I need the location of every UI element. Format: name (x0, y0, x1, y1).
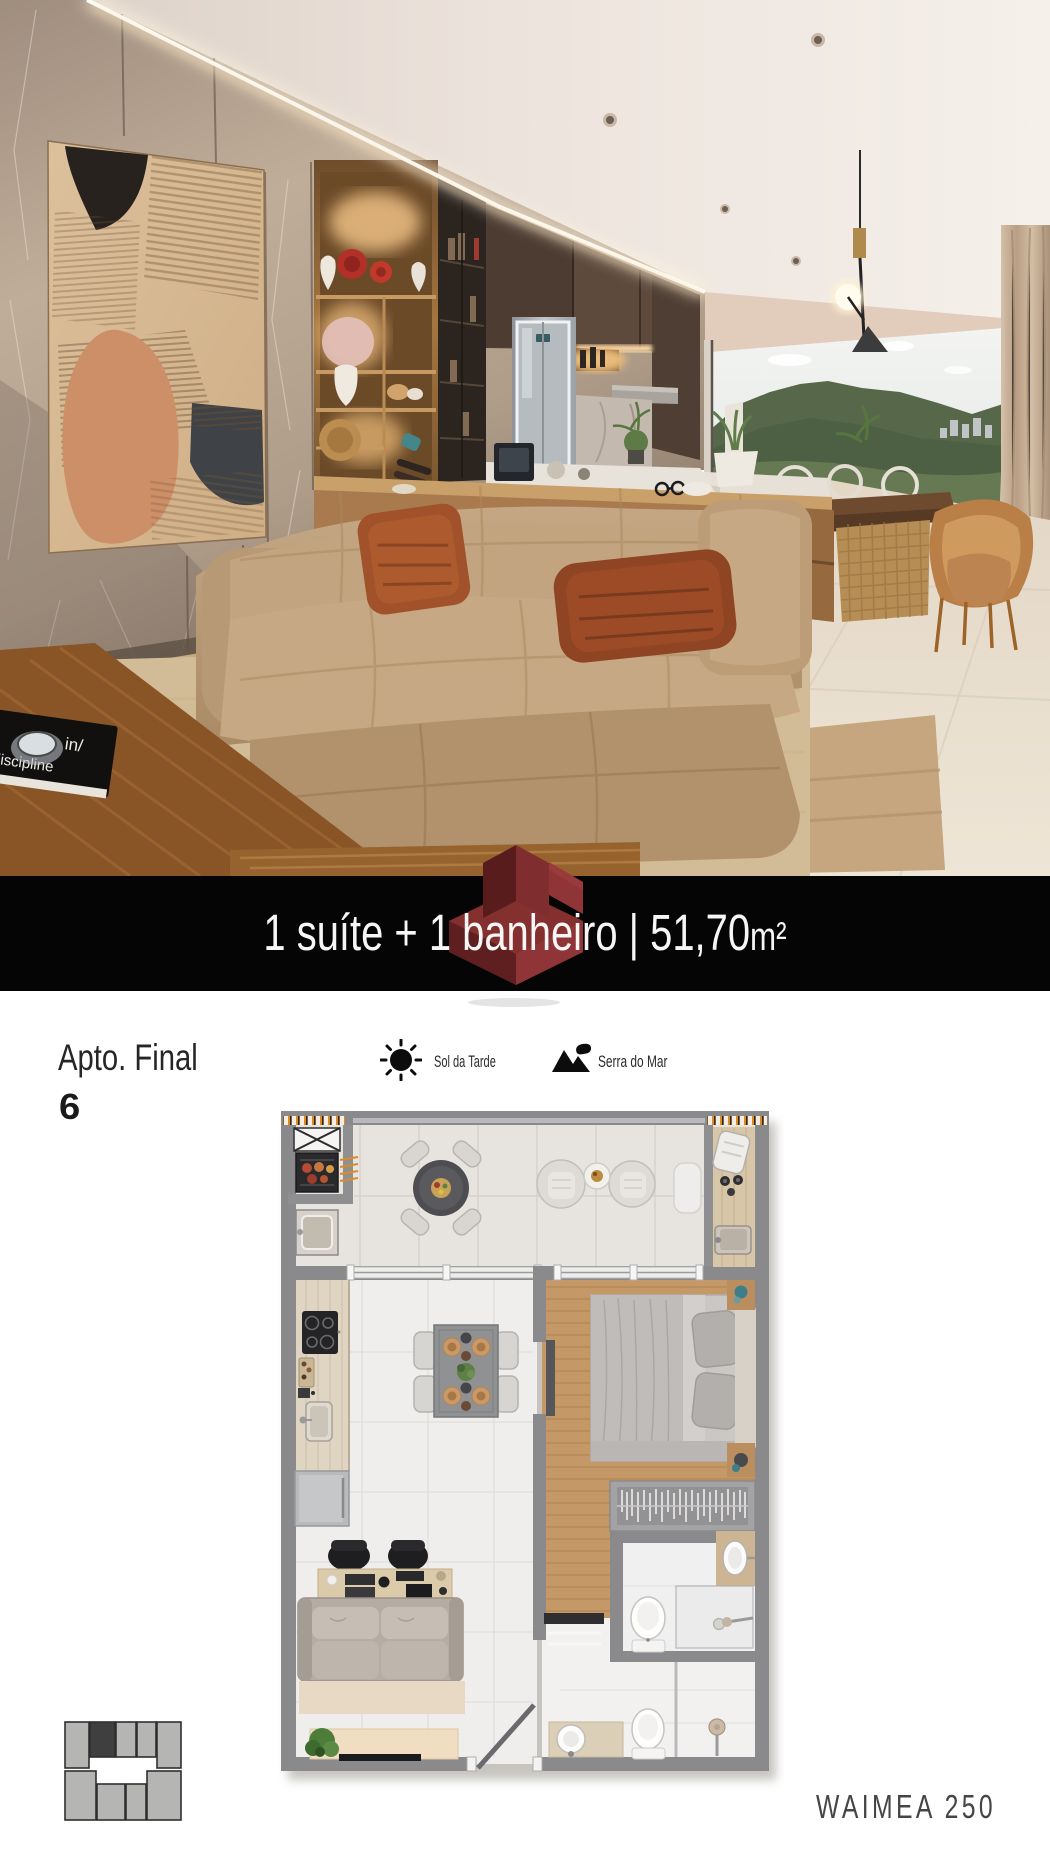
svg-text:in/: in/ (64, 734, 85, 755)
